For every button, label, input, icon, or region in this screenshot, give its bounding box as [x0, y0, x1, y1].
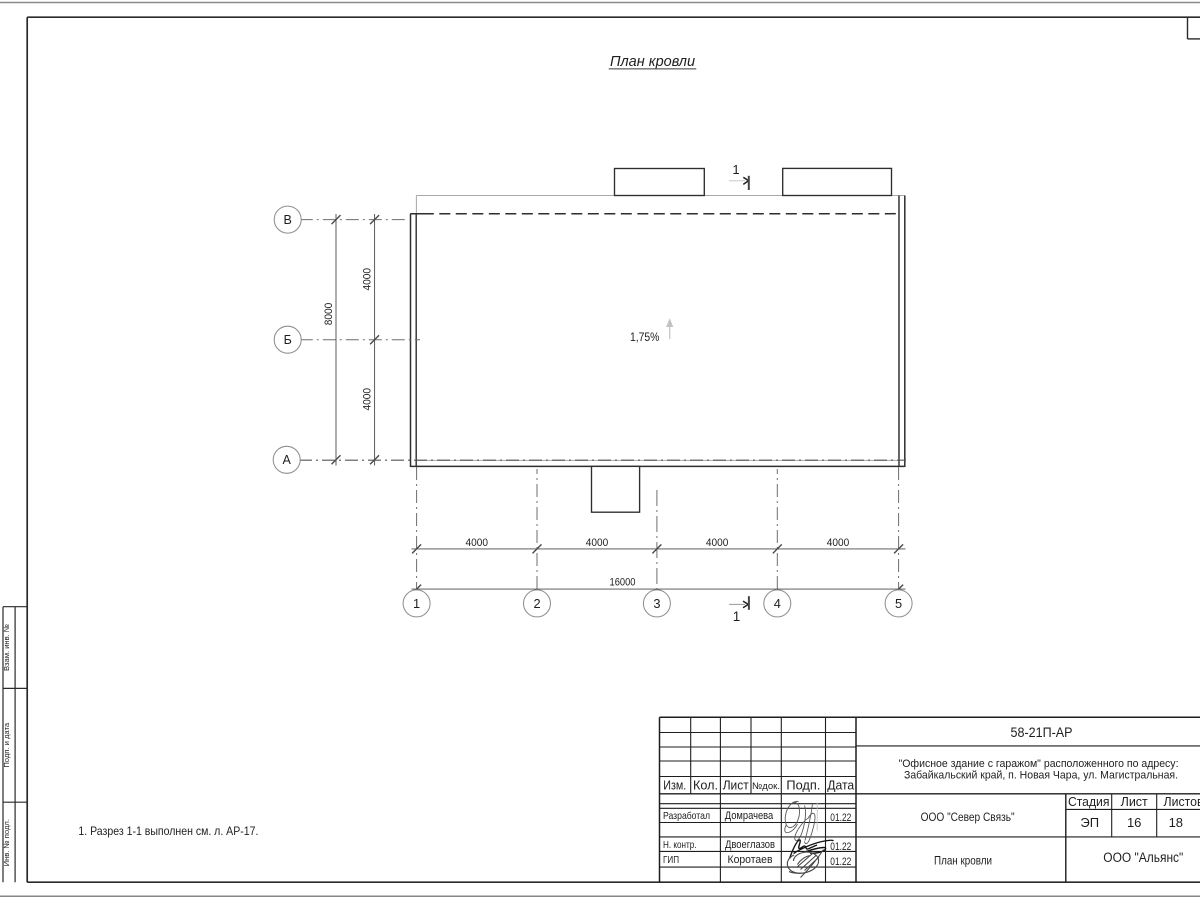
- svg-text:ООО "Север Связь": ООО "Север Связь": [921, 812, 1015, 824]
- svg-text:ЭП: ЭП: [1080, 815, 1099, 830]
- svg-text:Изм.: Изм.: [663, 778, 686, 792]
- svg-text:4000: 4000: [362, 268, 374, 291]
- svg-text:4000: 4000: [466, 537, 489, 549]
- svg-text:5: 5: [895, 596, 902, 611]
- svg-text:Н. контр.: Н. контр.: [663, 839, 697, 851]
- svg-text:План кровли: План кровли: [610, 54, 695, 70]
- svg-text:А: А: [283, 453, 292, 467]
- svg-text:Разработал: Разработал: [663, 810, 710, 822]
- svg-text:2: 2: [533, 596, 540, 611]
- svg-text:Забайкальский край, п. Новая Ч: Забайкальский край, п. Новая Чара, ул. М…: [904, 770, 1178, 782]
- svg-text:Стадия: Стадия: [1068, 795, 1110, 809]
- svg-text:58-21П-АР: 58-21П-АР: [1011, 725, 1073, 740]
- svg-text:Подп.: Подп.: [786, 778, 820, 792]
- svg-text:1: 1: [413, 596, 420, 611]
- svg-text:01.22: 01.22: [830, 812, 851, 824]
- svg-text:Кол.: Кол.: [693, 778, 718, 792]
- svg-text:1: 1: [733, 609, 741, 624]
- svg-text:Взам. инв. №: Взам. инв. №: [2, 624, 11, 671]
- svg-text:Дата: Дата: [827, 778, 854, 792]
- svg-text:1,75%: 1,75%: [630, 332, 660, 344]
- svg-text:ООО "Альянс": ООО "Альянс": [1103, 850, 1183, 865]
- svg-text:"Офисное здание с гаражом" рас: "Офисное здание с гаражом" расположенног…: [899, 758, 1179, 770]
- svg-text:Коротаев: Коротаев: [728, 854, 773, 866]
- svg-text:4000: 4000: [706, 537, 729, 549]
- svg-text:1. Разрез 1-1 выполнен см. л.: 1. Разрез 1-1 выполнен см. л. АР-17.: [78, 824, 258, 838]
- svg-text:4000: 4000: [586, 537, 609, 549]
- svg-text:01.22: 01.22: [830, 841, 851, 853]
- svg-text:Б: Б: [284, 333, 292, 347]
- svg-text:Домрачева: Домрачева: [725, 810, 774, 822]
- svg-text:Лист: Лист: [723, 778, 749, 792]
- svg-text:3: 3: [653, 596, 660, 611]
- svg-text:4000: 4000: [827, 537, 850, 549]
- svg-text:01.22: 01.22: [830, 856, 851, 868]
- svg-text:Двоеглазов: Двоеглазов: [725, 839, 775, 851]
- svg-text:Подп. и дата: Подп. и дата: [2, 722, 11, 768]
- svg-text:№док.: №док.: [752, 781, 780, 792]
- svg-text:4000: 4000: [362, 388, 374, 411]
- svg-text:Инв. № подл.: Инв. № подл.: [2, 819, 11, 866]
- svg-text:18: 18: [1169, 815, 1183, 830]
- svg-text:16000: 16000: [610, 576, 636, 588]
- svg-text:8000: 8000: [323, 303, 335, 326]
- svg-text:Лист: Лист: [1121, 795, 1148, 809]
- svg-text:ГИП: ГИП: [663, 854, 679, 866]
- svg-text:Листов: Листов: [1164, 795, 1200, 809]
- svg-text:План кровли: План кровли: [934, 854, 992, 868]
- svg-text:16: 16: [1127, 815, 1141, 830]
- svg-text:4: 4: [774, 596, 781, 611]
- svg-text:В: В: [284, 213, 292, 227]
- svg-text:1: 1: [732, 162, 739, 177]
